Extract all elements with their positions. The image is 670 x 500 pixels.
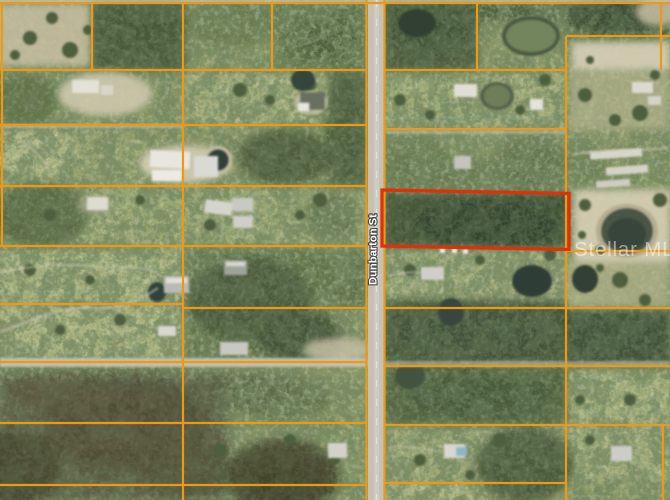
svg-text:Stellar MLS: Stellar MLS [574, 238, 670, 261]
svg-text:Dunbarton St: Dunbarton St [368, 214, 380, 285]
